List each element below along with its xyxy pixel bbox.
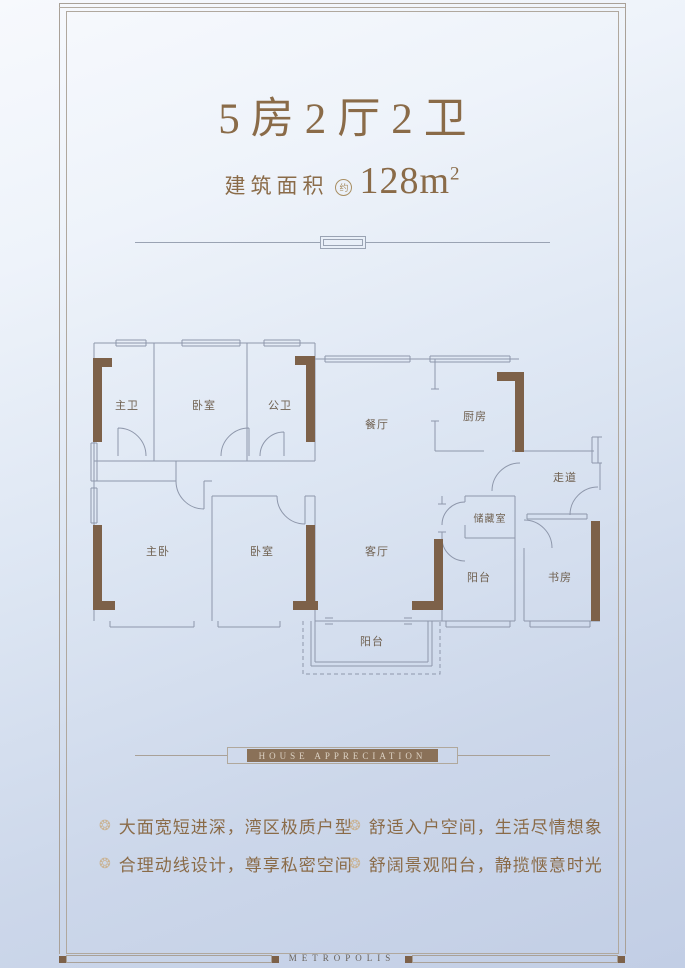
header: 5房2厅2卫 建筑面积 约 128m2 [0, 84, 685, 203]
room-label: 阳台 [360, 634, 384, 648]
area-value: 128m2 [359, 159, 460, 203]
room-label: 客厅 [365, 544, 389, 558]
room-label: 公卫 [268, 400, 292, 412]
room-label: 阳台 [467, 570, 491, 584]
room-label: 卧室 [250, 544, 274, 558]
room-label: 书房 [548, 571, 572, 584]
room-label: 储藏室 [474, 512, 507, 525]
feature-item: ❂ 舒阔景观阳台，静揽惬意时光 [349, 851, 603, 876]
divider-emblem-inner [323, 239, 363, 246]
feature-item: ❂ 舒适入户空间，生活尽情想象 [349, 813, 603, 838]
ornament-bullet-icon: ❂ [349, 818, 362, 834]
window-markings [91, 340, 602, 627]
feature-item: ❂ 大面宽短进深，湾区极质户型 [99, 813, 349, 838]
page-title: 5房2厅2卫 [0, 84, 685, 146]
feature-text: 舒阔景观阳台，静揽惬意时光 [369, 851, 603, 876]
room-label: 卧室 [192, 398, 216, 412]
bar-square-icon [405, 956, 412, 963]
ornament-bullet-icon: ❂ [99, 856, 112, 872]
banner-box: HOUSE APPRECIATION [227, 747, 459, 764]
room-label: 餐厅 [365, 417, 389, 431]
feature-text: 合理动线设计，尊享私密空间 [119, 851, 353, 876]
door-arcs [118, 428, 598, 561]
bar-square-icon [272, 956, 279, 963]
floorplan-diagram: 主卫 卧室 公卫 餐厅 厨房 走道 主卧 卧室 客厅 储藏室 阳台 书房 阳台 [82, 333, 602, 693]
divider-emblem [320, 236, 366, 249]
banner-line-right [458, 755, 550, 756]
divider-line-right [366, 242, 551, 243]
brand-text: METROPOLIS [279, 953, 406, 963]
ornament-bullet-icon: ❂ [349, 856, 362, 872]
walls-layer [91, 340, 602, 674]
section-banner: HOUSE APPRECIATION [135, 747, 550, 764]
area-approx-badge: 约 [335, 179, 352, 196]
divider-line-left [135, 242, 320, 243]
room-label: 主卫 [115, 399, 139, 412]
banner-label: HOUSE APPRECIATION [247, 749, 439, 762]
title-divider [135, 236, 550, 249]
feature-text: 舒适入户空间，生活尽情想象 [369, 813, 603, 838]
room-label: 厨房 [463, 410, 487, 423]
bar-segment-right [412, 955, 618, 963]
area-number: 128m [359, 160, 450, 202]
bar-segment-left [66, 955, 272, 963]
area-superscript: 2 [450, 163, 461, 184]
bar-square-icon [618, 956, 625, 963]
feature-text: 大面宽短进深，湾区极质户型 [119, 813, 353, 838]
room-label: 主卧 [146, 545, 170, 558]
ornament-bullet-icon: ❂ [99, 818, 112, 834]
feature-item: ❂ 合理动线设计，尊享私密空间 [99, 851, 349, 876]
decorative-frame-topline [59, 7, 625, 8]
bar-square-icon [59, 956, 66, 963]
area-label: 建筑面积 [224, 170, 328, 200]
features-list: ❂ 大面宽短进深，湾区极质户型 ❂ 舒适入户空间，生活尽情想象 ❂ 合理动线设计… [99, 813, 597, 876]
area-row: 建筑面积 约 128m2 [0, 159, 685, 203]
banner-line-left [135, 755, 227, 756]
room-labels-layer: 主卫 卧室 公卫 餐厅 厨房 走道 主卧 卧室 客厅 储藏室 阳台 书房 阳台 [115, 398, 577, 648]
floorplan-poster: 5房2厅2卫 建筑面积 约 128m2 [0, 0, 685, 968]
footer-bar: METROPOLIS [59, 954, 625, 964]
room-label: 走道 [553, 470, 577, 484]
